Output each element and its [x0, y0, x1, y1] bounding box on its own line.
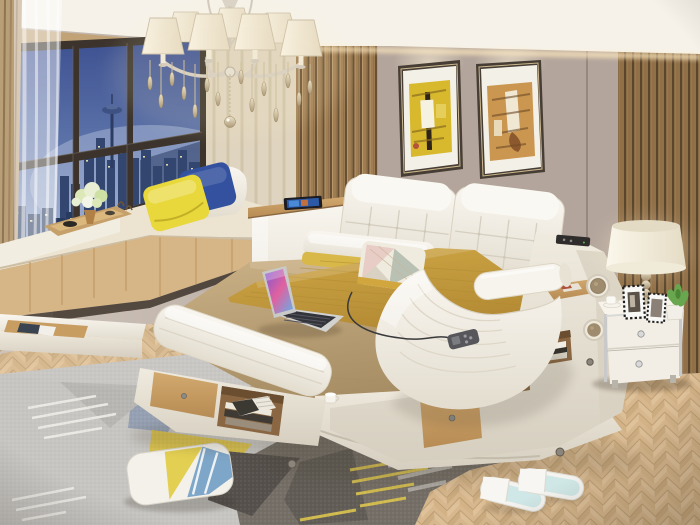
bedroom-photo [0, 0, 700, 525]
vignette [0, 0, 700, 525]
